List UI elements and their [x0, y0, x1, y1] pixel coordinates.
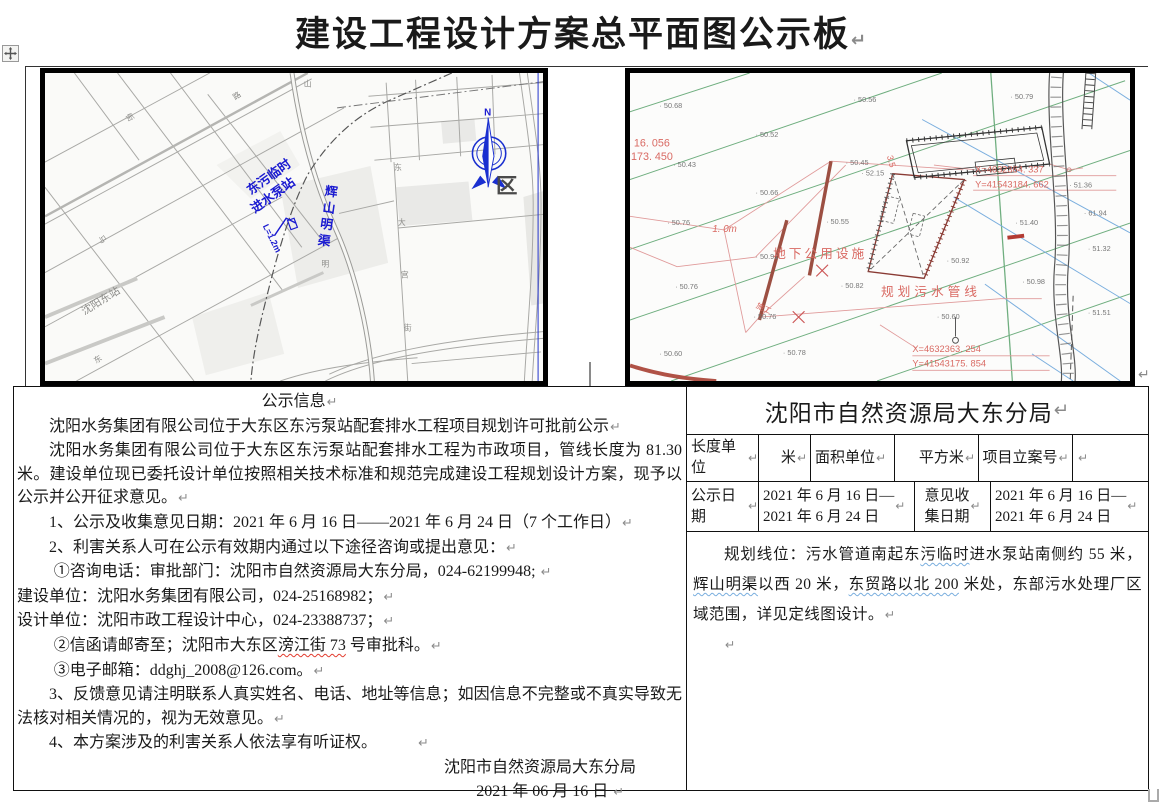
map-label: · 50.43: [673, 160, 696, 169]
cell-divider-mark: [589, 362, 591, 386]
paragraph-mark: ↵: [418, 736, 429, 751]
paragraph-mark: ↵: [610, 420, 621, 435]
map-label: Y=41543184. 662: [975, 179, 1049, 189]
page-title-text: 建设工程设计方案总平面图公示板: [295, 15, 850, 54]
length-unit-value: 米↵: [759, 435, 811, 481]
notice-table: 公示信息↵沈阳水务集团有限公司位于大东区东污泵站配套排水工程项目规划许可批前公示…: [13, 386, 1149, 791]
map-label: · 50.52: [755, 130, 778, 139]
table-move-handle-icon[interactable]: [2, 45, 19, 62]
map-label: N: [484, 108, 491, 119]
map-label: · 50.66: [755, 188, 778, 197]
area-unit-label: 面积单位↵: [811, 435, 895, 481]
map-label: · 51.36: [1069, 180, 1092, 189]
page-title: 建设工程设计方案总平面图公示板↵: [0, 6, 1163, 57]
text-line: ↵: [693, 630, 1142, 660]
text-line: 2、利害关系人可在公示有效期内通过以下途径咨询或提出意见：↵: [17, 536, 682, 561]
paragraph-mark: ↵: [851, 30, 868, 51]
map-label: X=4632364. 337: [975, 165, 1044, 175]
move-cross-icon: [3, 46, 18, 61]
location-map-drawing: N区东污临时进水泵站辉山明渠L=1.2m沈阳东站山路街马东大宫街东明: [45, 73, 543, 381]
map-label: Y=41543175. 854: [912, 359, 986, 369]
publicity-board-page: 建设工程设计方案总平面图公示板↵: [0, 0, 1163, 804]
units-row: 长度单位↵ 米↵ 面积单位↵ 平方米↵ 项目立案号↵ ↵: [687, 435, 1148, 482]
map-label: 173. 450: [631, 151, 673, 163]
text-line: 2021 年 06 月 16 日 ↵: [17, 780, 682, 804]
map-label: 宫: [401, 269, 409, 279]
publicity-date-value: 2021 年 6 月 16 日— 2021 年 6 月 24 日↵: [759, 482, 915, 531]
paragraph-mark: ↵: [541, 565, 552, 580]
agency-name: 沈阳市自然资源局大东分局: [765, 394, 1053, 428]
map-label: · 50.68: [659, 101, 682, 110]
paragraph-mark: ↵: [725, 637, 736, 652]
paragraph-mark: ↵: [1054, 400, 1070, 421]
planning-line-text: 规划线位：污水管道南起东污临时进水泵站南侧约 55 米，辉山明渠以西 20 米，…: [687, 532, 1148, 660]
map-label: · 61.94: [1084, 208, 1107, 217]
map-label: 规划污水管线: [881, 285, 981, 299]
paragraph-mark: ↵: [383, 614, 394, 629]
location-map-image: N区东污临时进水泵站辉山明渠L=1.2m沈阳东站山路街马东大宫街东明: [40, 68, 548, 386]
map-label: 1. 0m: [712, 224, 737, 235]
paragraph-mark: ↵: [622, 516, 633, 531]
map-label: 区: [496, 174, 518, 198]
map-label: · 51.32: [1088, 244, 1111, 253]
paragraph-mark: ↵: [613, 785, 624, 800]
map-label: X=4632363. 254: [912, 344, 981, 354]
text-line: 公示信息↵: [17, 390, 682, 415]
map-label: 大: [398, 217, 406, 227]
publicity-date-label: 公示日期↵: [687, 482, 759, 531]
paragraph-mark: ↵: [327, 395, 338, 410]
case-number-label: 项目立案号↵: [979, 435, 1073, 481]
map-label: · 50.98: [1022, 277, 1045, 286]
agency-header: 沈阳市自然资源局大东分局↵: [687, 387, 1148, 435]
text-line: 建设单位：沈阳水务集团有限公司，024-25168982；↵: [17, 585, 682, 610]
paragraph-mark: ↵: [885, 607, 896, 622]
length-unit-label: 长度单位↵: [687, 435, 759, 481]
paragraph-mark: ↵: [383, 590, 394, 605]
paragraph-mark: ↵: [506, 541, 517, 556]
map-label: · 50.55: [826, 217, 849, 226]
map-label: · 50.78: [783, 348, 806, 357]
text-line: 1、公示及收集意见日期：2021 年 6 月 16 日——2021 年 6 月 …: [17, 511, 682, 536]
paragraph-mark: ↵: [178, 491, 189, 506]
text-line: 3、反馈意见请注明联系人真实姓名、电话、地址等信息；如因信息不完整或不真实导致无…: [17, 683, 682, 731]
text-line: 沈阳水务集团有限公司位于大东区东污泵站配套排水工程为市政项目，管线长度为 81.…: [17, 439, 682, 511]
map-label: · 52.15: [861, 169, 884, 178]
area-unit-value: 平方米↵: [895, 435, 979, 481]
case-number-value: ↵: [1073, 435, 1148, 481]
map-label: · 50.60: [659, 349, 682, 358]
map-label: 地下公用设施: [773, 247, 867, 261]
map-label: · 50.79: [1010, 92, 1033, 101]
notice-text-cell: 公示信息↵沈阳水务集团有限公司位于大东区东污泵站配套排水工程项目规划许可批前公示…: [14, 387, 687, 790]
map-label: 街: [404, 323, 412, 333]
collection-date-label: 意见收 集日期↵: [915, 482, 991, 531]
map-label: · 51.51: [1088, 308, 1111, 317]
map-label: · 50.92: [947, 256, 970, 265]
text-line: 沈阳市自然资源局大东分局: [17, 756, 682, 780]
site-plan-image: · 50.68· 50.56· 50.79· 50.52· 50.43· 50.…: [625, 68, 1135, 386]
text-line: 规划线位：污水管道南起东污临时进水泵站南侧约 55 米，辉山明渠以西 20 米，…: [693, 540, 1142, 630]
table-end-mark: [1148, 789, 1159, 802]
map-label: · 50.76: [667, 218, 690, 227]
site-plan-drawing: · 50.68· 50.56· 50.79· 50.52· 50.43· 50.…: [630, 73, 1130, 381]
dates-row: 公示日期↵ 2021 年 6 月 16 日— 2021 年 6 月 24 日↵ …: [687, 482, 1148, 532]
text-line: 4、本方案涉及的利害关系人依法享有听证权。 ↵: [17, 731, 682, 756]
collection-date-value: 2021 年 6 月 16 日— 2021 年 6 月 24 日↵: [991, 482, 1148, 531]
map-label: · 50.45: [846, 158, 869, 167]
text-line: ②信函请邮寄至；沈阳市大东区滂江街 73 号审批科。↵: [17, 634, 682, 659]
text-line: 沈阳水务集团有限公司位于大东区东污泵站配套排水工程项目规划许可批前公示↵: [17, 415, 682, 440]
text-line: 设计单位：沈阳市政工程设计中心，024-23388737；↵: [17, 609, 682, 634]
map-label: 16. 056: [634, 138, 670, 150]
map-label: 东: [394, 162, 402, 172]
paragraph-mark: ↵: [274, 712, 285, 727]
text-line: ①咨询电话：审批部门：沈阳市自然资源局大东分局，024-62199948; ↵: [17, 560, 682, 585]
paragraph-mark: ↵: [431, 639, 442, 654]
text-line: ③电子邮箱：ddghj_2008@126.com。↵: [17, 659, 682, 684]
agency-panel: 沈阳市自然资源局大东分局↵ 长度单位↵ 米↵ 面积单位↵ 平方米↵ 项目立案号↵…: [687, 387, 1148, 790]
map-label: · 50.56: [854, 95, 877, 104]
paragraph-mark: ↵: [314, 664, 325, 679]
paragraph-mark: ↵: [1138, 367, 1150, 383]
map-label: · 51.40: [1015, 218, 1038, 227]
map-label: · 50.82: [841, 281, 864, 290]
map-label: 山: [304, 79, 312, 89]
map-label: · 50.60: [937, 312, 960, 321]
map-label: · 50.76: [675, 282, 698, 291]
map-label: 明: [321, 260, 329, 269]
